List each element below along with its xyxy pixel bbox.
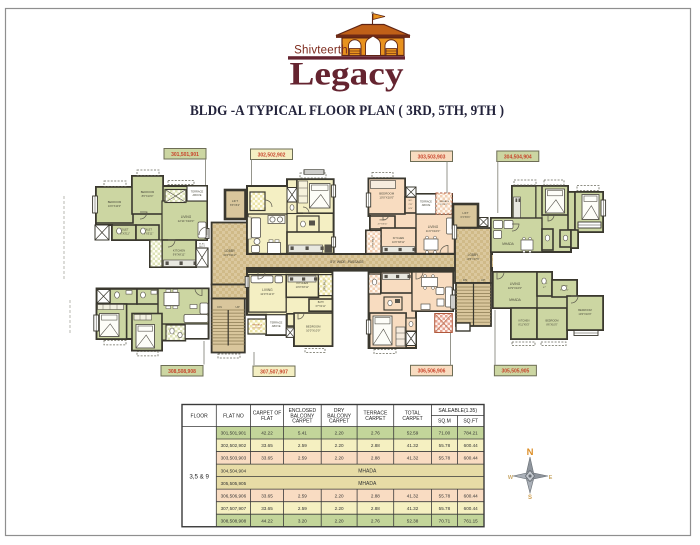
svg-text:CARPET: CARPET (402, 416, 422, 422)
svg-text:10'0"X10'0": 10'0"X10'0" (578, 312, 591, 316)
svg-text:8'0" WIDE -PASSAGE: 8'0" WIDE -PASSAGE (330, 260, 364, 264)
svg-text:BEDROOM: BEDROOM (546, 320, 559, 323)
svg-text:5'0"X6'2": 5'0"X6'2" (440, 204, 448, 206)
svg-text:304,504,904: 304,504,904 (221, 468, 247, 473)
svg-text:2.59: 2.59 (298, 506, 307, 511)
svg-text:TERRACE: TERRACE (439, 200, 450, 203)
svg-text:10'0"X10'0": 10'0"X10'0" (108, 204, 121, 208)
svg-text:ABOVE: ABOVE (422, 204, 431, 207)
svg-text:LOBBY: LOBBY (468, 253, 480, 257)
svg-text:55.78: 55.78 (439, 493, 451, 498)
svg-text:S: S (528, 495, 532, 501)
svg-text:2.20: 2.20 (335, 456, 344, 461)
svg-text:2.20: 2.20 (335, 431, 344, 436)
svg-text:10'0"X8'11": 10'0"X8'11" (296, 285, 310, 289)
svg-text:41.32: 41.32 (407, 493, 419, 498)
svg-text:TERRACE: TERRACE (270, 321, 283, 325)
svg-text:LOBBY: LOBBY (224, 249, 236, 253)
svg-text:MHADA: MHADA (509, 298, 521, 302)
svg-text:2.20: 2.20 (335, 493, 344, 498)
svg-text:33.65: 33.65 (261, 493, 273, 498)
svg-text:10'0"X10'0": 10'0"X10'0" (379, 195, 394, 199)
svg-text:6'7": 6'7" (543, 287, 547, 289)
svg-text:LIFT: LIFT (462, 211, 468, 215)
svg-text:303,503,903: 303,503,903 (221, 456, 247, 461)
svg-text:33.65: 33.65 (261, 443, 273, 448)
svg-text:3,5 & 9: 3,5 & 9 (189, 474, 209, 481)
svg-text:9'6"X8'11": 9'6"X8'11" (173, 253, 186, 257)
svg-text:10'0"X10'0": 10'0"X10'0" (306, 329, 320, 333)
svg-text:306,506,906: 306,506,906 (418, 369, 446, 375)
svg-text:44.22: 44.22 (261, 518, 273, 523)
svg-text:FLOOR: FLOOR (191, 413, 209, 419)
svg-text:8'11"X9'3": 8'11"X9'3" (518, 324, 529, 327)
svg-text:2.20: 2.20 (335, 506, 344, 511)
svg-text:41.32: 41.32 (407, 456, 419, 461)
svg-text:306,506,906: 306,506,906 (221, 493, 247, 498)
svg-text:KITCHEN: KITCHEN (519, 320, 530, 323)
svg-text:301,501,901: 301,501,901 (171, 152, 199, 158)
svg-text:10'9"X10'0": 10'9"X10'0" (508, 286, 522, 290)
svg-text:600.44: 600.44 (464, 443, 478, 448)
svg-text:2.88: 2.88 (371, 506, 380, 511)
svg-text:2.88: 2.88 (371, 443, 380, 448)
svg-text:SQ.FT: SQ.FT (463, 419, 478, 425)
svg-text:2.59: 2.59 (298, 456, 307, 461)
svg-text:DRY BALC: DRY BALC (372, 236, 375, 247)
svg-text:UP: UP (236, 305, 240, 309)
svg-text:MHADA: MHADA (358, 481, 377, 487)
svg-text:BEDROOM: BEDROOM (578, 308, 591, 312)
svg-text:TERRACE: TERRACE (252, 324, 263, 327)
svg-text:17'6"X7'11": 17'6"X7'11" (252, 328, 262, 330)
svg-text:42.22: 42.22 (261, 431, 273, 436)
svg-text:11'0"X11'0": 11'0"X11'0" (260, 292, 274, 296)
svg-text:N: N (527, 447, 534, 458)
svg-text:307,507,907: 307,507,907 (221, 506, 247, 511)
svg-text:W.C.: W.C. (408, 200, 413, 202)
svg-text:BEDROOM: BEDROOM (108, 200, 121, 204)
svg-text:305,505,905: 305,505,905 (501, 369, 529, 375)
svg-text:55.78: 55.78 (439, 506, 451, 511)
svg-text:761.15: 761.15 (464, 518, 478, 523)
svg-text:307,507,907: 307,507,907 (260, 369, 288, 375)
svg-text:MHADA: MHADA (502, 242, 514, 246)
svg-text:10'0"X8'11": 10'0"X8'11" (392, 240, 405, 244)
svg-text:2.76: 2.76 (371, 518, 380, 523)
svg-text:DRY BALC: DRY BALC (324, 279, 327, 291)
svg-text:301,501,901: 301,501,901 (221, 431, 247, 436)
svg-text:Shivteerth: Shivteerth (294, 45, 348, 57)
svg-text:CARPET: CARPET (292, 419, 312, 425)
svg-text:600.44: 600.44 (464, 456, 478, 461)
svg-text:302,502,902: 302,502,902 (221, 443, 247, 448)
svg-text:302,502,902: 302,502,902 (258, 152, 286, 158)
svg-text:BEDROOM: BEDROOM (141, 190, 154, 194)
svg-text:SALEABLE(1.35): SALEABLE(1.35) (438, 408, 477, 414)
svg-text:70.71: 70.71 (439, 518, 451, 523)
svg-text:52.59: 52.59 (407, 431, 419, 436)
svg-text:DN: DN (217, 305, 221, 309)
svg-text:ABOVE: ABOVE (272, 324, 281, 328)
svg-text:E: E (549, 475, 553, 481)
svg-text:2.59: 2.59 (298, 493, 307, 498)
svg-text:2.88: 2.88 (371, 456, 380, 461)
svg-text:8'6"X10'0": 8'6"X10'0" (546, 324, 557, 327)
svg-text:8'3"X6'2": 8'3"X6'2" (230, 204, 240, 207)
svg-text:LIFT: LIFT (232, 199, 238, 203)
svg-text:5.41: 5.41 (298, 431, 307, 436)
svg-text:41.32: 41.32 (407, 443, 419, 448)
svg-text:4'7"X3'11": 4'7"X3'11" (378, 224, 388, 226)
svg-text:308,508,908: 308,508,908 (221, 518, 247, 523)
svg-text:KITCHEN: KITCHEN (393, 236, 405, 240)
svg-text:10'6"X17'6": 10'6"X17'6" (466, 257, 479, 261)
svg-text:304,504,904: 304,504,904 (504, 154, 532, 160)
svg-text:33.65: 33.65 (261, 506, 273, 511)
svg-text:UP: UP (481, 278, 485, 282)
svg-text:Legacy: Legacy (290, 57, 405, 93)
svg-text:600.44: 600.44 (464, 506, 478, 511)
svg-text:33.65: 33.65 (261, 456, 273, 461)
svg-text:SQ.M: SQ.M (438, 419, 451, 425)
svg-text:41.32: 41.32 (407, 506, 419, 511)
svg-text:8'6"X10'0": 8'6"X10'0" (142, 194, 154, 198)
svg-text:71.00: 71.00 (439, 431, 451, 436)
svg-text:2.20: 2.20 (335, 443, 344, 448)
svg-text:12'11"X10'0": 12'11"X10'0" (178, 219, 195, 223)
svg-text:X4'0": X4'0" (408, 208, 413, 210)
svg-text:2.20: 2.20 (335, 518, 344, 523)
svg-text:BLDG -A TYPICAL FLOOR PLAN ( 3: BLDG -A TYPICAL FLOOR PLAN ( 3RD, 5TH, 9… (190, 103, 504, 119)
svg-text:11'0"X10'0": 11'0"X10'0" (426, 229, 441, 233)
svg-text:55.78: 55.78 (439, 456, 451, 461)
svg-text:3.20: 3.20 (298, 518, 307, 523)
svg-text:FLAT NO: FLAT NO (223, 413, 244, 419)
svg-text:303,503,903: 303,503,903 (418, 154, 446, 160)
svg-text:600.44: 600.44 (464, 493, 478, 498)
svg-text:2'11": 2'11" (408, 204, 412, 206)
svg-text:10'6"X21'2": 10'6"X21'2" (223, 253, 236, 257)
svg-text:FLAT: FLAT (261, 416, 273, 422)
svg-text:6'1"X6'1": 6'1"X6'1" (461, 216, 471, 219)
svg-text:308,508,908: 308,508,908 (168, 369, 196, 375)
svg-text:CARPET: CARPET (329, 419, 349, 425)
svg-text:W: W (508, 475, 514, 481)
svg-text:305,505,905: 305,505,905 (221, 481, 247, 486)
svg-text:DN: DN (463, 278, 467, 282)
svg-text:55.78: 55.78 (439, 443, 451, 448)
svg-text:MHADA: MHADA (358, 468, 377, 474)
svg-text:2.76: 2.76 (371, 431, 380, 436)
svg-text:52.38: 52.38 (407, 518, 419, 523)
svg-text:6'7"X4'11": 6'7"X4'11" (316, 306, 326, 308)
svg-text:CARPET: CARPET (365, 416, 385, 422)
svg-text:2.59: 2.59 (298, 443, 307, 448)
svg-text:2.88: 2.88 (371, 493, 380, 498)
svg-text:ABOVE: ABOVE (193, 193, 202, 197)
svg-text:BATH: BATH (318, 301, 324, 304)
svg-text:784.21: 784.21 (464, 431, 478, 436)
